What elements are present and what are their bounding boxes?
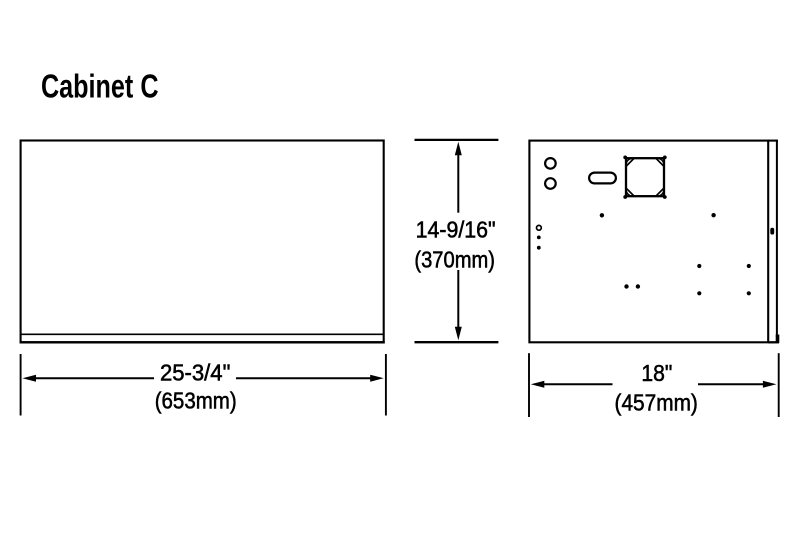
svg-text:(653mm): (653mm) (155, 387, 237, 413)
svg-text:25-3/4": 25-3/4" (160, 360, 231, 386)
svg-text:(457mm): (457mm) (615, 389, 698, 415)
svg-text:14-9/16": 14-9/16" (416, 217, 496, 243)
svg-text:Cabinet C: Cabinet C (41, 68, 159, 105)
svg-text:(370mm): (370mm) (414, 247, 495, 273)
svg-text:18": 18" (641, 360, 672, 386)
